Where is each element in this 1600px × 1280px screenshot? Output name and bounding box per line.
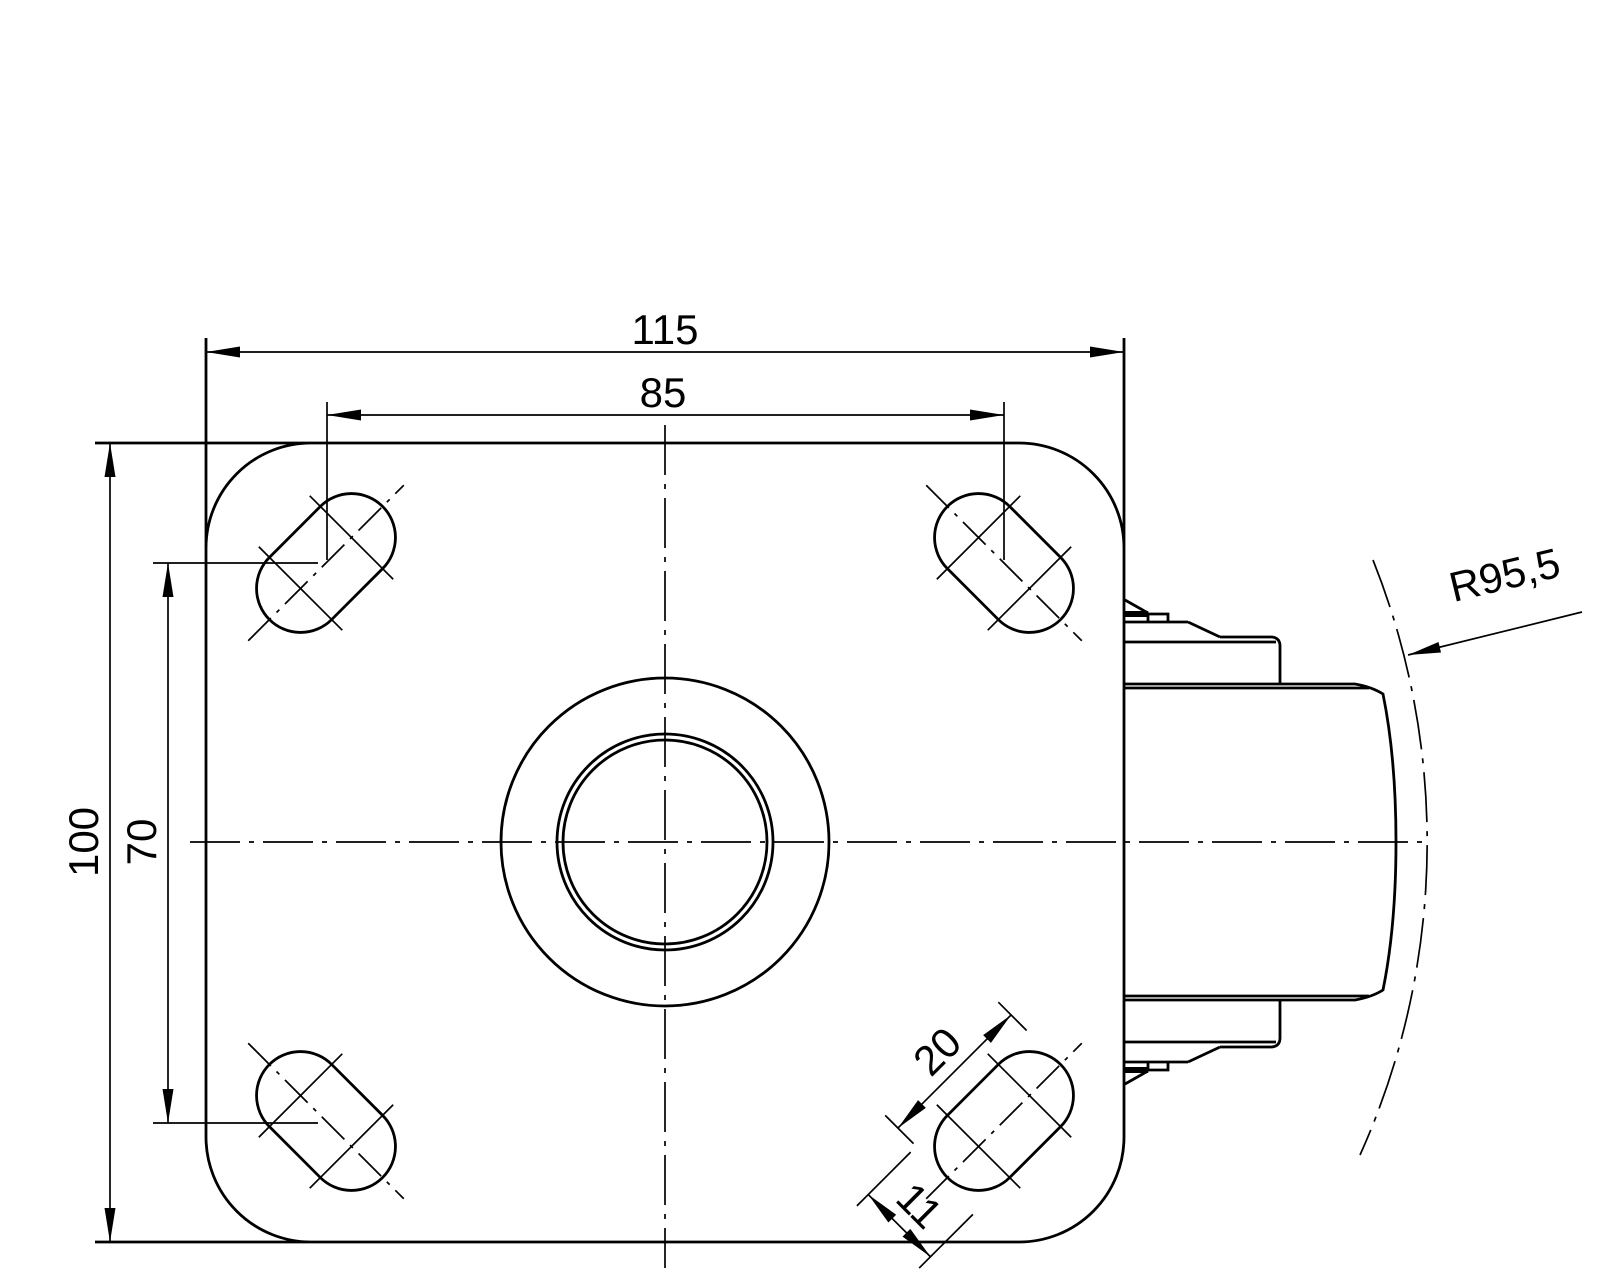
dimension-label-hole-spacing-height: 70 [118, 819, 165, 866]
dimension-arrow [105, 1208, 116, 1242]
dimension-arrow [163, 563, 174, 597]
dimension-arrow [163, 1089, 174, 1123]
dimension-arrow [894, 1100, 926, 1132]
dimension-115: 115 [206, 306, 1124, 358]
slot-axis-centerline [248, 1043, 404, 1199]
plate-edge-path [95, 338, 1124, 1242]
dimension-100: 100 [60, 443, 116, 1242]
plate-outline [95, 338, 1124, 1242]
dimension-label-hole-spacing-width: 85 [640, 369, 687, 416]
dimension-arrow [105, 443, 116, 477]
technical-drawing-caster-plate-top-view: 20 11 115 85 100 [0, 0, 1600, 1280]
dimension-label-swivel-radius: R95,5 [1445, 539, 1565, 611]
mounting-slot-bottom-right: 20 11 [803, 958, 1123, 1278]
dimension-arrow [983, 1011, 1015, 1043]
leader-arrow [1408, 642, 1441, 655]
dimension-arrow [970, 410, 1004, 421]
dimension-label-plate-width: 115 [632, 306, 699, 353]
dimension-70: 70 [118, 563, 318, 1123]
drawing-sheet: 20 11 115 85 100 [0, 0, 1600, 1280]
dimension-label-slot-length: 20 [904, 1018, 970, 1084]
dimension-label-plate-height: 100 [60, 807, 107, 877]
swivel-seal-edge [1125, 611, 1148, 617]
radius-callout-r95-5: R95,5 [1360, 539, 1582, 1155]
dimension-arrow [1090, 347, 1124, 358]
dimension-arrow [206, 347, 240, 358]
swivel-radius-arc [1360, 560, 1427, 1155]
swivel-seal-edge [1125, 1067, 1148, 1073]
mounting-slot-bottom-left [206, 1001, 445, 1240]
dimension-arrow [327, 410, 361, 421]
